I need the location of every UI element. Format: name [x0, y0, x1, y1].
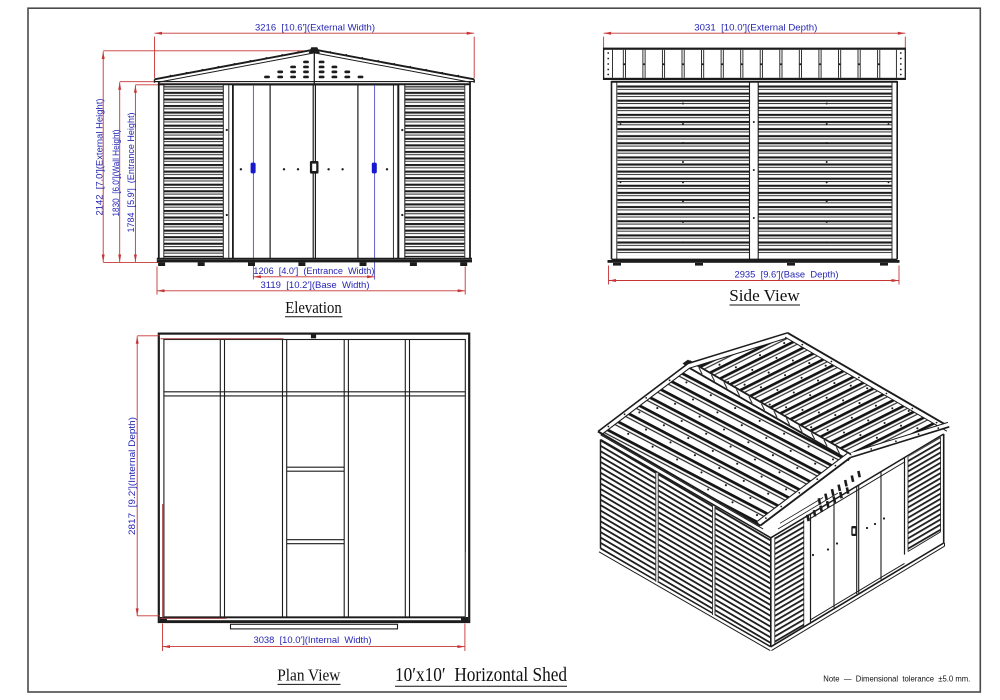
svg-text:3038 [10.0′](Internal Width): 3038 [10.0′](Internal Width): [254, 635, 372, 645]
svg-text:1206 [4.0′] (Entrance Width: 1206 [4.0′] (Entrance Width): [253, 266, 374, 276]
svg-text:Plan View: Plan View: [277, 666, 340, 685]
svg-text:3031 [10.0′](External Depth): 3031 [10.0′](External Depth): [694, 23, 817, 33]
svg-text:10′x10′ Horizontal Shed: 10′x10′ Horizontal Shed: [395, 664, 567, 686]
svg-text:Note — Dimensional toleranc: Note — Dimensional tolerance ±5.0 mm.: [823, 673, 970, 683]
svg-text:Side View: Side View: [729, 286, 800, 305]
svg-text:2935 [9.6′](Base Depth): 2935 [9.6′](Base Depth): [735, 270, 839, 280]
svg-text:3119 [10.2′](Base Width): 3119 [10.2′](Base Width): [261, 280, 370, 290]
svg-text:1784 [5.9′] (Entrance Height: 1784 [5.9′] (Entrance Height): [126, 113, 136, 233]
svg-text:Elevation: Elevation: [285, 298, 342, 317]
svg-text:1830 [6.0′](Wall Height): 1830 [6.0′](Wall Height): [111, 130, 121, 217]
svg-text:2817 [9.2′](Internal Depth): 2817 [9.2′](Internal Depth): [127, 417, 137, 535]
svg-text:3216 [10.6′](External Width): 3216 [10.6′](External Width): [255, 23, 375, 33]
svg-text:2142 [7.0′](External Height): 2142 [7.0′](External Height): [94, 99, 104, 216]
